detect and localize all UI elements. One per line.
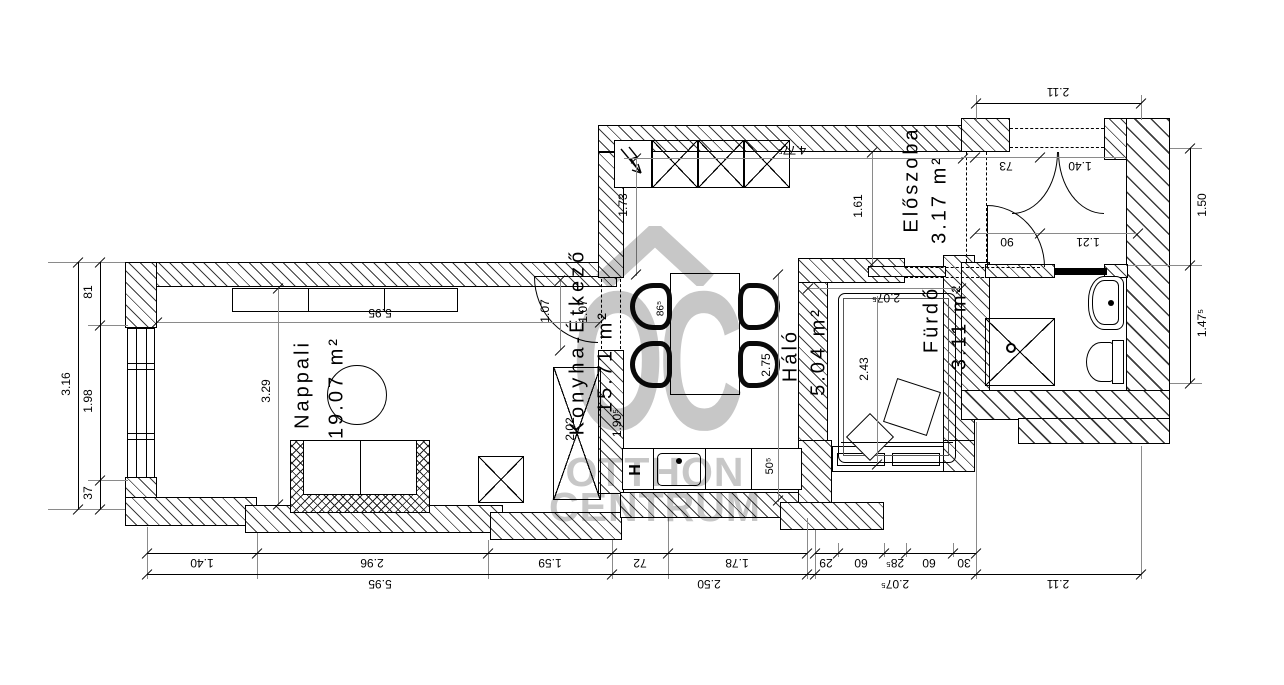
wall-bottom-step — [780, 502, 884, 530]
wall-nappali-bottom-3 — [490, 512, 622, 540]
dim-left-total: 3.16 — [59, 357, 73, 411]
dim-elo-opening: 73 — [979, 159, 1033, 173]
chair-3 — [738, 283, 780, 330]
opening-nappali-dash-2 — [620, 279, 621, 349]
ext-line — [88, 325, 128, 326]
dimline-top-right — [976, 103, 1141, 104]
dim-kitchen-depth: 2.75 — [759, 338, 773, 392]
room-label-furdo: Fürdő — [921, 210, 944, 430]
wall-right-thick — [1126, 118, 1170, 420]
dim-b1-2: 1.59 — [523, 556, 577, 570]
dim-left-seg2: 1.98 — [81, 374, 95, 428]
ext-line — [1170, 383, 1202, 384]
dimline-elo-top — [961, 157, 1124, 158]
wall-entry-jamb — [1104, 118, 1128, 160]
toilet-tank — [1112, 340, 1124, 384]
ext-line — [1170, 148, 1202, 149]
dim-b2-3: 2.11 — [1031, 577, 1085, 591]
room-area-nappali: 19.07 m² — [326, 278, 349, 498]
dimline-bottom-row2 — [147, 574, 1141, 575]
chair-2 — [630, 341, 672, 388]
dim-kitchen-left: 1.73 — [616, 178, 630, 232]
sink-faucet-dot — [676, 458, 682, 464]
dimline-left-outer — [78, 262, 79, 509]
dimline-bottom-row1-a — [147, 553, 807, 554]
dimline-halo-depth — [877, 296, 878, 464]
ext-line — [668, 518, 669, 579]
ext-line — [1141, 446, 1142, 579]
dim-b2-0: 5.95 — [353, 577, 407, 591]
dim-bath-door: 90 — [980, 235, 1034, 249]
dim-counter-run: 1.90⁵ — [610, 396, 624, 450]
shower-drain — [1006, 343, 1016, 353]
label-fridge: H — [627, 443, 645, 497]
armchair-box — [478, 456, 524, 503]
dim-counter-depth: 50⁵ — [764, 439, 776, 493]
room-label-nappali: Nappali — [292, 275, 315, 495]
dim-table-width: 86⁵ — [656, 282, 667, 336]
wall-nappali-left-top — [125, 262, 157, 328]
dim-b1-9: 30 — [937, 556, 991, 570]
ext-line — [976, 95, 977, 120]
dimline-left-inner — [100, 262, 101, 509]
dim-b2-2: 2.07⁵ — [868, 577, 922, 591]
dim-b1-0: 1.40 — [175, 556, 229, 570]
dim-top-right: 2.11 — [1031, 85, 1085, 99]
dim-kitchen-width: 4.77⁵ — [765, 143, 819, 157]
dim-right-seg2: 1.47⁵ — [1195, 296, 1209, 350]
dim-nappali-width: 5.95 — [353, 306, 407, 320]
wall-entry-pillar — [961, 118, 1010, 152]
door-bath-threshold — [1055, 268, 1107, 275]
dim-door-b: 1.07 — [576, 284, 590, 338]
dimline-nappali-width — [157, 322, 600, 323]
window-nappali — [127, 328, 155, 478]
dim-b1-4: 1.78 — [710, 556, 764, 570]
dim-entry-door: 1.40 — [1053, 159, 1107, 173]
dim-door-a: 1.07 — [538, 284, 552, 338]
dimline-door-nappali — [560, 280, 561, 350]
dimline-hall-strip — [872, 152, 873, 264]
wall-bath-bottom — [961, 390, 1170, 420]
sofa-cushions — [303, 440, 417, 495]
dining-table — [670, 273, 740, 395]
dim-elo-width: 1.21 — [1061, 235, 1115, 249]
wall-bottom-right-step — [1018, 418, 1170, 444]
dim-left-seg1: 81 — [81, 265, 95, 319]
dimline-kitchen-left — [636, 158, 637, 276]
washbasin — [1088, 276, 1124, 330]
dashed-entry-2 — [1010, 147, 1104, 148]
dim-wardrobe: 2.02 — [563, 402, 577, 456]
dim-right-seg1: 1.50 — [1195, 178, 1209, 232]
dimline-halo-width — [808, 288, 961, 289]
dim-b1-3: 72 — [613, 556, 667, 570]
dim-halo-width: 2.07⁵ — [859, 291, 913, 305]
shower — [985, 318, 1055, 386]
dim-b1-1: 2.96 — [345, 556, 399, 570]
room-label-halo: Háló — [780, 246, 803, 466]
dim-nappali-depth: 3.29 — [259, 364, 273, 418]
dimline-kitchen-width — [624, 158, 963, 159]
room-area-furdo: 3.11 m² — [949, 217, 972, 437]
dashed-entry-1 — [1010, 128, 1104, 129]
wall-nappali-bottom-1 — [125, 497, 257, 526]
washbasin-faucet-dot — [1108, 300, 1114, 306]
ext-line — [1141, 95, 1142, 120]
dimline-kitchen-depth — [778, 274, 779, 502]
dim-b2-1: 2.50 — [682, 577, 736, 591]
dim-halo-depth: 2.43 — [857, 342, 871, 396]
floor-plan: Nappali 19.07 m² Konyha-Étkező 15.71 m² … — [0, 0, 1284, 685]
dim-hall-strip: 1.61 — [851, 179, 865, 233]
dim-left-seg3: 37 — [81, 466, 95, 520]
dimline-nappali-depth — [278, 288, 279, 504]
room-area-halo: 5.04 m² — [808, 242, 831, 462]
ext-line — [257, 533, 258, 579]
dimline-elo-bottom — [975, 233, 1138, 234]
ext-line — [48, 262, 125, 263]
